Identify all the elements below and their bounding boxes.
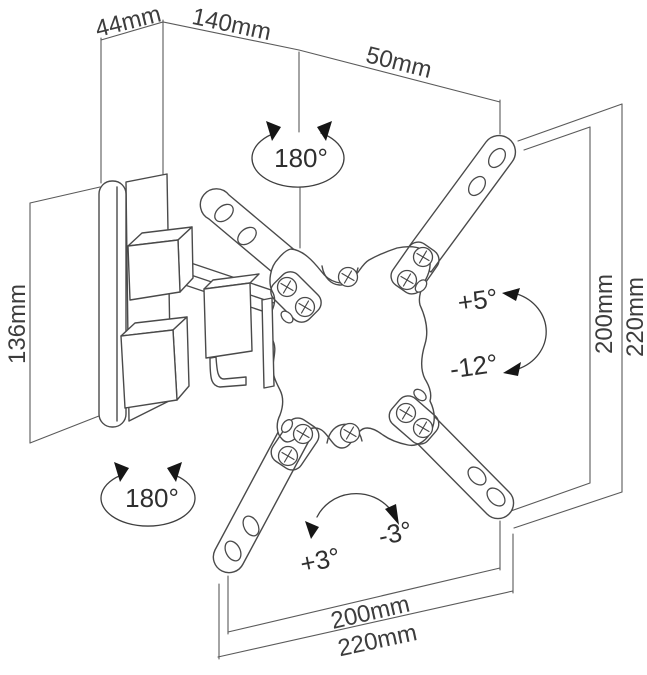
rotation-arrow-icon — [503, 362, 521, 376]
dim-label-right-200mm: 200mm — [591, 274, 618, 354]
extension-line — [30, 414, 104, 443]
screw-icon — [414, 419, 433, 438]
wall-plate-edge — [99, 181, 126, 427]
vesa-plate — [262, 238, 443, 474]
angle-label-minus3: -3° — [376, 515, 415, 551]
dim-label-right-220mm: 220mm — [622, 277, 647, 357]
extension-line — [30, 187, 100, 203]
dim-label-50mm: 50mm — [363, 42, 434, 84]
angle-label-plus5: +5° — [456, 282, 500, 317]
cable-hook — [210, 357, 246, 387]
plate-left-tab — [262, 298, 274, 388]
slider-clamp-front — [204, 283, 252, 358]
screw-icon — [294, 425, 313, 444]
upper-clamp-front — [128, 240, 180, 300]
extension-line — [518, 104, 622, 141]
lower-clamp-front — [121, 330, 177, 408]
rotation-arrow-icon — [167, 462, 182, 482]
screw-icon — [414, 248, 433, 267]
angle-label-minus12: -12° — [448, 348, 500, 384]
dim-label-44mm: 44mm — [93, 1, 164, 43]
angle-label-top-180: 180° — [274, 143, 328, 173]
tilt-arc — [517, 294, 546, 369]
screw-icon — [296, 298, 315, 317]
rotation-arrow-icon — [317, 121, 332, 141]
top-dimension-chain — [101, 22, 500, 102]
screw-icon — [279, 447, 298, 466]
rotation-arrow-icon — [305, 521, 319, 539]
diagram-canvas: 44mm 140mm 50mm 136mm 200mm 220mm 200mm … — [0, 0, 647, 675]
dim-label-140mm: 140mm — [190, 3, 274, 46]
dim-label-136mm: 136mm — [4, 284, 31, 364]
rotation-arrow-icon — [266, 121, 281, 141]
rotation-arrow-icon — [114, 462, 129, 482]
tv-mount-technical-drawing: 44mm 140mm 50mm 136mm 200mm 220mm 200mm … — [0, 0, 647, 675]
extension-line — [514, 492, 622, 528]
angle-label-bottom-180: 180° — [125, 483, 179, 513]
extension-line — [508, 483, 590, 512]
screw-icon — [278, 278, 297, 297]
level-arc — [317, 494, 390, 517]
screw-icon — [398, 271, 417, 290]
screw-icon — [397, 404, 416, 423]
angle-label-plus3: +3° — [297, 541, 342, 579]
screw-icon — [341, 424, 360, 443]
screw-icon — [339, 268, 358, 287]
extension-line — [524, 127, 590, 150]
rotation-arrow-icon — [502, 288, 520, 301]
